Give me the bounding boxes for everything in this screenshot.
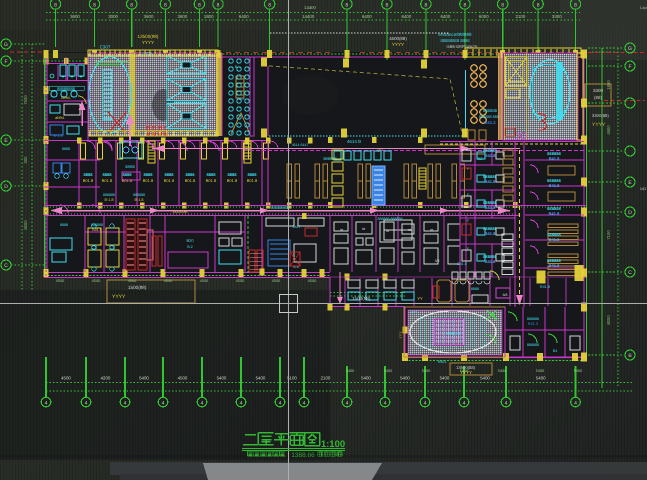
svg-text:1388.66: 1388.66 [291,452,315,459]
